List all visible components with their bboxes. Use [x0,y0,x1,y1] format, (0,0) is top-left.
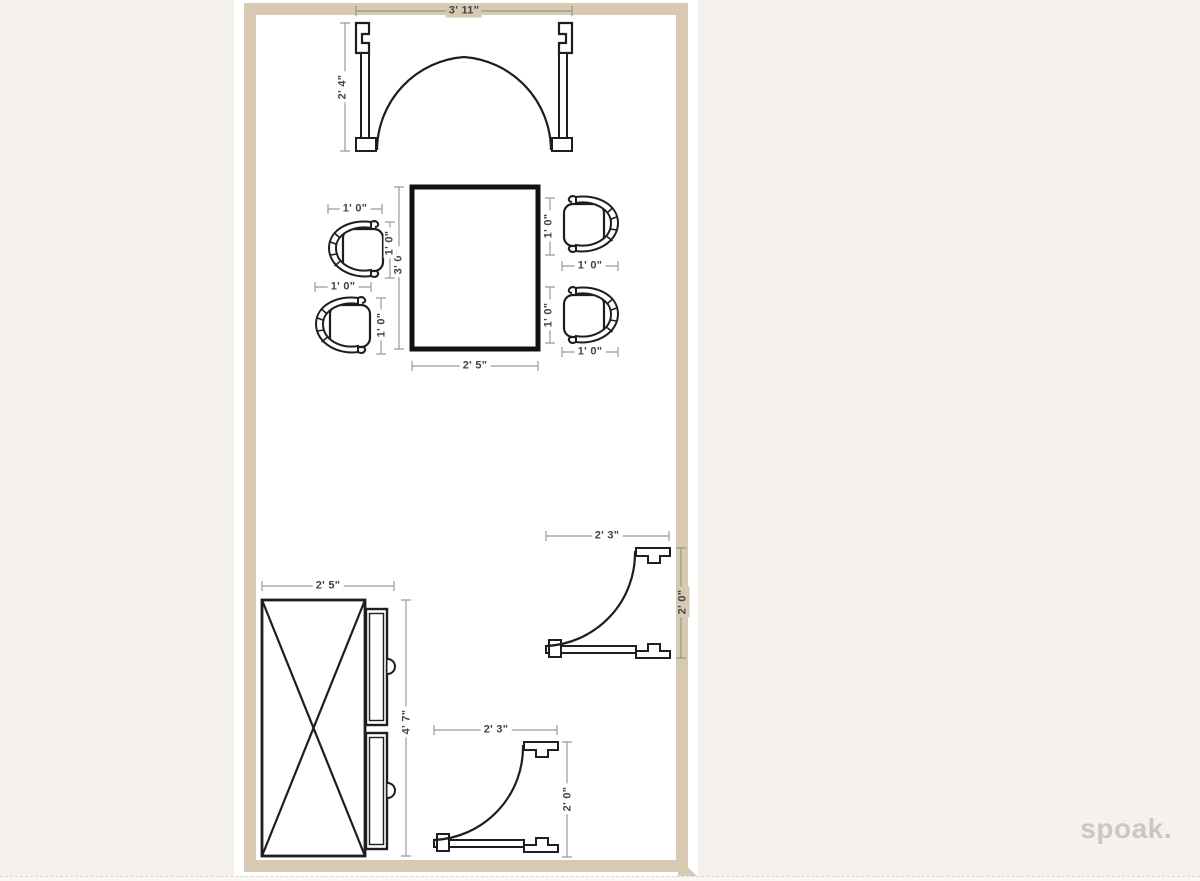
door-swing-left [377,57,464,150]
dim-label-chair-tr-width: 1' 0" [575,260,606,273]
dim-label-door-upper-width: 2' 3" [592,530,623,543]
door-swing-right [464,57,551,150]
door-frame-bottom [524,838,558,852]
dim-label-chair-bl-depth: 1' 0" [376,310,389,341]
door-leaf-right [559,53,567,150]
chair-bottom-left[interactable] [316,297,370,353]
door-frame-top [524,742,558,757]
door-frame-top [636,548,670,563]
door-swing [434,745,523,840]
dresser-drawer-1-handle [388,659,396,674]
wall-corner-notch [678,858,698,877]
door-knob [437,834,449,851]
dim-label-door-upper-depth: 2' 0" [677,587,690,618]
door-upper[interactable] [546,548,670,658]
door-lower[interactable] [434,742,558,852]
dim-label-dresser-width: 2' 5" [313,580,344,593]
dim-label-double-door-width: 3' 11" [446,5,482,18]
door-jamb-left [356,23,369,53]
dim-label-double-door-depth: 2' 4" [337,72,350,103]
door-jamb-right [559,23,572,53]
spoak-logo: spoak. [1080,813,1172,845]
dim-label-door-lower-width: 2' 3" [481,724,512,737]
bottom-edge [0,876,1200,881]
door-stop-right [552,138,572,151]
dim-label-chair-br-width: 1' 0" [575,346,606,359]
dresser[interactable] [262,600,395,856]
dim-label-door-lower-depth: 2' 0" [562,784,575,815]
door-swing [546,551,635,646]
dresser-drawer-2-handle [388,783,396,798]
table-outline [412,187,538,349]
dim-label-dresser-height: 4' 7" [401,707,414,738]
dim-label-chair-bl-width: 1' 0" [328,281,359,294]
dim-label-table-width: 2' 5" [460,360,491,373]
chair-top-left[interactable] [329,221,383,277]
door-frame-bottom [636,644,670,658]
dining-table[interactable] [412,187,538,349]
dim-label-chair-tr-depth: 1' 0" [543,211,556,242]
door-knob [549,640,561,657]
floorplan-drawing [0,0,1200,881]
dresser-drawer-1-inner [370,614,384,721]
chair-top-right[interactable] [564,196,618,252]
double-door[interactable] [356,23,572,151]
dim-label-chair-br-depth: 1' 0" [543,300,556,331]
door-leaf-left [361,53,369,150]
dim-label-chair-tl-width: 1' 0" [340,203,371,216]
dim-label-chair-tl-depth: 1' 0" [384,228,397,259]
dresser-drawer-2-inner [370,738,384,845]
door-stop-left [356,138,376,151]
chair-bottom-right[interactable] [564,287,618,343]
